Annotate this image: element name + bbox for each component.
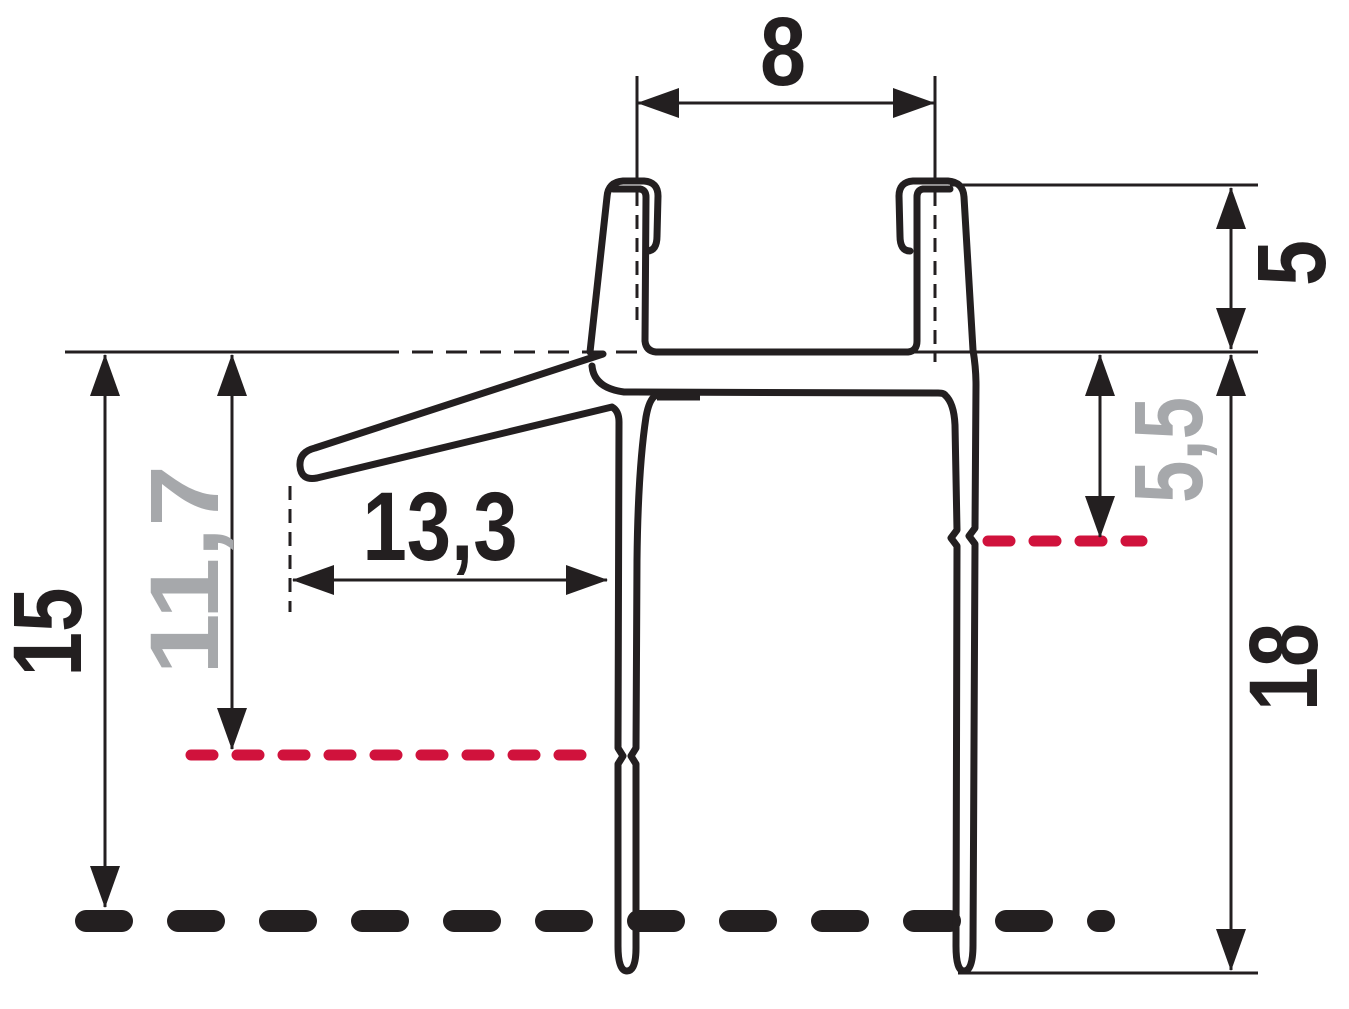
- dimension-lines: [105, 103, 1231, 970]
- seal-profile-technical-drawing: 8 5 5,5 18 15 11,7 13,3: [0, 0, 1349, 1009]
- diagram-canvas: 8 5 5,5 18 15 11,7 13,3: [0, 0, 1349, 1009]
- left-wing-and-left-leg: [300, 354, 655, 971]
- dim-label-right-lower: 18: [1229, 623, 1338, 711]
- dim-label-right-upper: 5: [1237, 240, 1346, 286]
- dim-label-left-mid: 11,7: [130, 465, 239, 675]
- base-bottom-edge: [592, 366, 945, 395]
- right-wall-and-right-leg: [899, 181, 976, 971]
- seal-deflection-levels: [191, 541, 1142, 755]
- dim-label-top-width: 8: [760, 0, 806, 106]
- dim-label-left-outer: 15: [0, 588, 102, 677]
- dim-label-center-width: 13,3: [363, 472, 518, 581]
- dim-label-right-mid: 5,5: [1114, 397, 1223, 503]
- reference-lines: [65, 76, 1258, 973]
